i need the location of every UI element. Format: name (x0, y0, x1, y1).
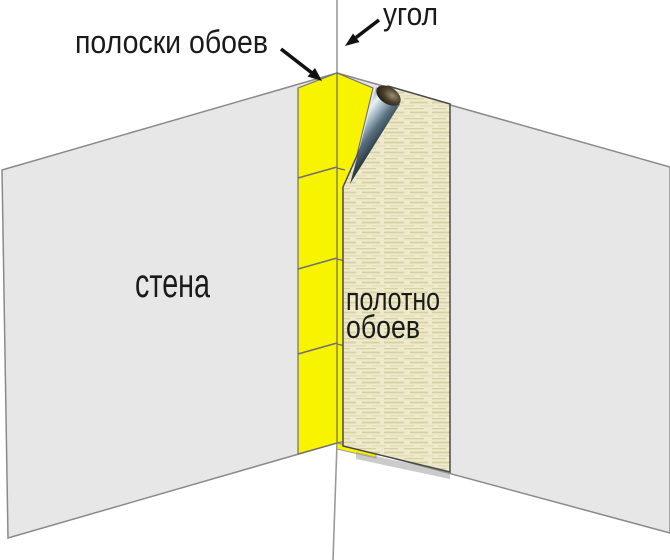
strips-label: полоски обоев (75, 24, 268, 60)
sheet-label-line2: обоев (346, 309, 420, 345)
diagram-canvas: полоски обоев угол стена полотно обоев (0, 0, 670, 560)
wallpaper-corner-diagram: полоски обоев угол стена полотно обоев (0, 0, 670, 560)
wall-label: стена (135, 260, 210, 306)
corner-label: угол (383, 0, 438, 32)
